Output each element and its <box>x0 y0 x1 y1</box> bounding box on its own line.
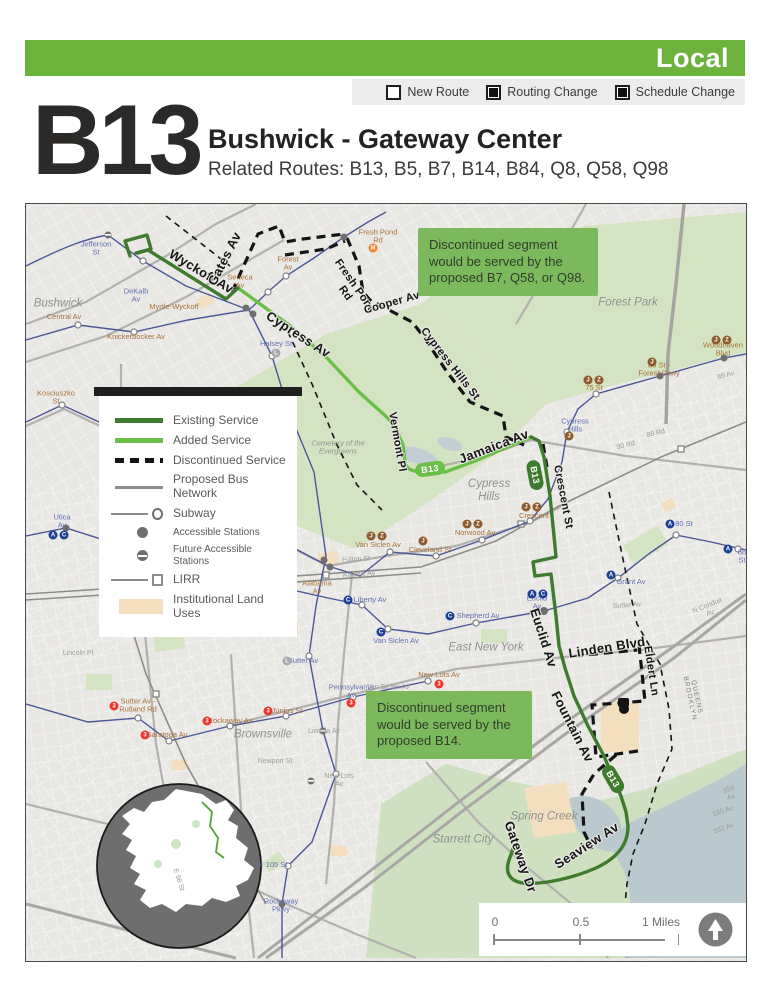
key-label: New Route <box>407 85 469 99</box>
route-related: Related Routes: B13, B5, B7, B14, B84, Q… <box>208 159 669 181</box>
callout: Discontinued segment would be served by … <box>418 228 598 296</box>
subway-bullet-icon: A <box>607 571 616 580</box>
subway-bullet-icon: J <box>367 532 376 541</box>
subway-bullet-icon: Z <box>723 336 732 345</box>
legend-top-bar <box>94 387 302 396</box>
existing-swatch-icon <box>111 418 163 423</box>
scale-tick-label: 0.5 <box>573 915 590 929</box>
checkbox-icon <box>386 85 401 100</box>
subway-bullet-icon: 3 <box>141 731 150 740</box>
subway-swatch-icon <box>111 508 163 520</box>
subway-bullet-icon: A <box>666 520 675 529</box>
future-swatch-icon <box>111 550 163 561</box>
legend-label: Subway <box>173 507 216 521</box>
subway-bullet-icon: J <box>565 432 574 441</box>
header-bar: Local <box>25 40 745 76</box>
scale-ruler: 00.51 Miles <box>493 915 679 945</box>
legend-label: LIRR <box>173 573 200 587</box>
inset-map <box>97 784 261 948</box>
subway-bullet-icon: 3 <box>110 702 119 711</box>
change-key: New RouteRouting ChangeSchedule Change <box>352 79 745 105</box>
legend-row: LIRR <box>111 573 287 587</box>
subway-bullet-icon: C <box>377 628 386 637</box>
subway-bullet-icon: 3 <box>347 699 356 708</box>
accessible-swatch-icon <box>111 527 163 538</box>
subway-bullet-icon: 3 <box>264 707 273 716</box>
subway-bullet-icon: C <box>446 612 455 621</box>
subway-bullet-icon: A <box>49 531 58 540</box>
legend-row: Existing Service <box>111 414 287 428</box>
discontinued-swatch-icon <box>111 458 163 463</box>
legend-label: Added Service <box>173 434 251 448</box>
route-id: B13 <box>32 90 199 189</box>
added-swatch-icon <box>111 438 163 443</box>
legend-label: Proposed Bus Network <box>173 473 248 501</box>
route-map: Wyckoff AvGates AvFresh Pond RdCooper Av… <box>25 203 747 962</box>
subway-bullet-icon: J <box>584 376 593 385</box>
subway-bullet-icon: 3 <box>203 717 212 726</box>
subway-bullet-icon: J <box>648 358 657 367</box>
legend-label: Future Accessible Stations <box>173 544 287 567</box>
legend-row: Institutional Land Uses <box>111 593 287 621</box>
subway-bullet-icon: M <box>369 244 378 253</box>
subway-bullet-icon: A <box>528 590 537 599</box>
legend-label: Existing Service <box>173 414 258 428</box>
key-item: Schedule Change <box>615 85 735 100</box>
subway-bullet-icon: J <box>463 520 472 529</box>
subway-bullet-icon: A <box>724 545 733 554</box>
callout: Discontinued segment would be served by … <box>366 691 532 759</box>
route-title: Bushwick - Gateway Center <box>208 124 562 155</box>
legend-label: Accessible Stations <box>173 527 260 539</box>
subway-bullet-icon: L <box>272 349 281 358</box>
scale-tick-label: 1 Miles <box>642 915 680 929</box>
scale-box: 00.51 Miles <box>479 903 746 956</box>
subway-bullet-icon: 3 <box>435 680 444 689</box>
key-label: Schedule Change <box>636 85 735 99</box>
legend-row: Proposed Bus Network <box>111 473 287 501</box>
key-item: Routing Change <box>486 85 597 100</box>
legend-row: Future Accessible Stations <box>111 544 287 567</box>
subway-bullet-icon: Z <box>595 376 604 385</box>
subway-bullet-icon: C <box>539 590 548 599</box>
key-item: New Route <box>386 85 469 100</box>
map-legend: Existing ServiceAdded ServiceDiscontinue… <box>99 396 297 637</box>
subway-bullet-icon: Z <box>378 532 387 541</box>
legend-row: Added Service <box>111 434 287 448</box>
subway-bullet-icon: J <box>712 336 721 345</box>
service-type-badge: Local <box>656 43 729 74</box>
legend-label: Discontinued Service <box>173 454 286 468</box>
legend-label: Institutional Land Uses <box>173 593 287 621</box>
subway-bullet-icon: L <box>283 657 292 666</box>
north-arrow-icon <box>698 912 733 947</box>
proposed-swatch-icon <box>111 486 163 489</box>
subway-bullet-icon: C <box>344 596 353 605</box>
scale-tick-label: 0 <box>492 915 499 929</box>
checkbox-icon <box>486 85 501 100</box>
lirr-swatch-icon <box>111 574 163 586</box>
subway-bullet-icon: Z <box>474 520 483 529</box>
checkbox-icon <box>615 85 630 100</box>
legend-row: Discontinued Service <box>111 454 287 468</box>
subway-bullet-icon: C <box>60 531 69 540</box>
institutional-swatch-icon <box>111 599 163 614</box>
subway-bullet-icon: J <box>419 537 428 546</box>
key-label: Routing Change <box>507 85 597 99</box>
legend-rows: Existing ServiceAdded ServiceDiscontinue… <box>111 414 287 621</box>
subway-bullet-icon: J <box>522 503 531 512</box>
subway-bullet-icon: Z <box>533 503 542 512</box>
legend-row: Accessible Stations <box>111 527 287 539</box>
legend-row: Subway <box>111 507 287 521</box>
